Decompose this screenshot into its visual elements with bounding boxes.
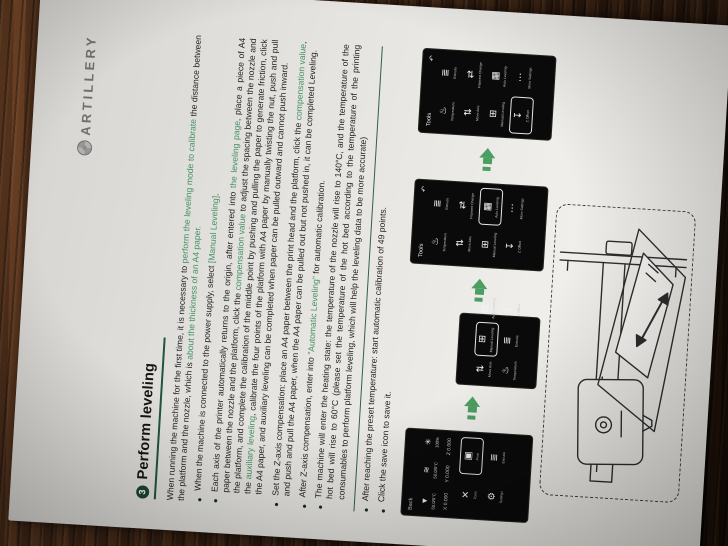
- printer-line-drawing: [542, 206, 693, 500]
- section-title-row: 3 Perform leveling: [134, 336, 166, 499]
- extrude-icon: ≣: [503, 336, 513, 345]
- manual-leveling-icon: ⊞: [480, 240, 490, 249]
- leveling-menu-screen: ⇅Move Axis⊞Manual Leveling▦Auto Leveling…: [457, 314, 540, 389]
- status-nozzle-icon: ▼50.0/0°C: [421, 492, 437, 511]
- bullet-list-top: ●When the machine is connected to the po…: [192, 36, 375, 511]
- text-segment: After Z-axis compensation, enter into: [297, 354, 316, 497]
- back-label: Back: [408, 434, 419, 510]
- tools-auto-leveling-screen: Tools↶♨Temperature≣Extrude⇅Move Axis⇄Fil…: [411, 180, 548, 271]
- screen-item-z-offset-icon: ↧Z Offset: [501, 295, 526, 325]
- screen-item-move-axis-icon: ⇅Move Axis: [459, 93, 484, 131]
- flow-arrow-icon: [479, 148, 496, 172]
- artillery-logo-mark-icon: [77, 140, 93, 156]
- nav-grid: ✕Tools▣Print⚙Settings≣Extrude: [457, 437, 511, 516]
- screen-item-label: Auto Leveling: [494, 197, 500, 218]
- screen-item-label: Z Offset: [516, 304, 521, 316]
- screen-item-settings-icon: ⚙Settings: [483, 477, 508, 515]
- screen-item-move-axis-icon: ⇅Move Axis: [472, 355, 497, 383]
- more-settings-icon: ⋯: [508, 203, 518, 213]
- back-icon: ↶: [421, 186, 428, 192]
- extrude-icon: ≣: [489, 453, 499, 462]
- text-segment: for automatic calibration.: [311, 180, 327, 276]
- printer-illustration-box: [539, 203, 697, 503]
- screen-item-label: Manual Leveling: [489, 327, 495, 352]
- screen-item-auto-leveling-icon: ▦Auto Leveling: [478, 188, 503, 226]
- screen-item-label: Auto Leveling: [502, 66, 508, 87]
- touchscreen-flow: Back▼50.0/0°C≋50.0/0°C✳100%X 0.000Y 0.00…: [396, 49, 556, 522]
- screen-item-label: Extrude: [444, 198, 449, 210]
- tools-grid: ♨Temperature≣Extrude⇅Move Axis⇄Filament …: [434, 54, 536, 135]
- temperature-icon: ♨: [439, 106, 449, 115]
- manual-content: 3 Perform leveling When running the mach…: [132, 33, 706, 531]
- coord-value: X 0.000: [443, 493, 450, 511]
- status-fan-icon: ✳100%: [425, 436, 441, 449]
- coord-value: Y 0.000: [445, 465, 452, 482]
- screen-item-label: Settings: [498, 491, 503, 504]
- manual-leveling-icon: ⊞: [488, 109, 498, 118]
- screen-item-label: Extrude: [501, 452, 506, 464]
- hotbed-icon: ≋: [423, 466, 431, 473]
- filament-change-icon: ⇄: [466, 70, 476, 79]
- flow-arrow-icon: [471, 279, 488, 303]
- z-offset-icon: ↧: [505, 242, 515, 251]
- screen-item-label: Move Axis: [475, 105, 480, 121]
- coord-value: Z 0.000: [446, 438, 453, 455]
- filament-change-icon: ⇄: [458, 201, 468, 210]
- nozzle-icon: ▼: [421, 497, 429, 505]
- manual-page: ARTILLERY 3 Perform leveling When runnin…: [8, 0, 728, 546]
- screen-item-label: Z Offset: [517, 240, 522, 252]
- screen-item-label: Temperature: [450, 102, 455, 121]
- status-row: ▼50.0/0°C≋50.0/0°C✳100%: [421, 435, 441, 512]
- screen-item-label: Extrude: [514, 335, 519, 347]
- highlighted-phrase: [Manual Leveling]: [207, 196, 221, 264]
- screen-item-extrude-icon: ≣Extrude: [499, 323, 524, 357]
- screen-item-auto-leveling-icon: ▦Auto Leveling: [486, 57, 511, 95]
- flow-arrow-icon: [463, 397, 480, 421]
- screen-item-z-offset-icon: ↧Z Offset: [501, 227, 526, 265]
- temperature-icon: ♨: [431, 237, 441, 246]
- fan-icon: ✳: [425, 438, 433, 445]
- photo-scene: ARTILLERY 3 Perform leveling When runnin…: [0, 0, 728, 546]
- leveling-grid: ⇅Move Axis⊞Manual Leveling▦Auto Leveling…: [472, 318, 524, 385]
- screen-item-label: Tools: [473, 491, 478, 499]
- tools-save-screen: Tools↶♨Temperature≣Extrude⇅Move Axis⇄Fil…: [419, 49, 556, 140]
- screen-item-label: Manual Leveling: [499, 102, 505, 127]
- section-title-text: Perform leveling: [135, 362, 158, 480]
- bullet-marker-icon: ●: [377, 508, 388, 513]
- text-segment: Click the save icon to save it.: [376, 391, 393, 502]
- settings-icon: ⚙: [487, 492, 497, 501]
- screen-item-more-settings-icon: ⋯More Settings: [503, 189, 528, 227]
- screen-item-label: Z Offset: [525, 110, 530, 122]
- move-axis-icon: ⇅: [456, 239, 466, 248]
- screen-item-label: Extrude: [452, 67, 457, 79]
- tools-icon: ✕: [461, 491, 471, 500]
- status-value: 100%: [435, 437, 440, 448]
- screen-item-label: Auto Leveling: [491, 298, 497, 319]
- tools-grid: ♨Temperature≣Extrude⇅Move Axis⇄Filament …: [426, 185, 528, 266]
- screen-item-filament-change-icon: ⇄Filament Change: [453, 186, 478, 224]
- status-value: 50.0/0°C: [433, 462, 439, 479]
- screen-item-temperature-icon: ♨Temperature: [497, 357, 522, 385]
- screen-item-z-offset-icon: ↧Z Offset: [509, 96, 534, 134]
- bullet-marker-icon: ●: [361, 507, 372, 512]
- bullet-marker-icon: ●: [210, 498, 221, 503]
- auto-leveling-icon: ▦: [483, 202, 493, 212]
- screen-item-label: Temperature: [512, 361, 517, 380]
- auto-leveling-icon: ▦: [480, 304, 490, 314]
- screen-item-label: Temperature: [442, 232, 447, 251]
- z-offset-icon: ↧: [505, 306, 515, 315]
- artillery-logo: ARTILLERY: [77, 34, 99, 156]
- auto-leveling-icon: ▦: [491, 71, 501, 81]
- screen-item-extrude-icon: ≣Extrude: [429, 185, 454, 223]
- screen-item-label: Print: [475, 453, 480, 460]
- move-axis-icon: ⇅: [476, 364, 486, 373]
- more-settings-icon: ⋯: [516, 72, 526, 82]
- screen-item-label: More Settings: [519, 198, 525, 219]
- screen-item-manual-leveling-icon: ⊞Manual Leveling: [474, 322, 499, 356]
- back-icon: ↶: [429, 55, 436, 61]
- screen-item-label: Move Axis: [488, 361, 493, 377]
- screen-item-filament-change-icon: ⇄Filament Change: [461, 55, 486, 93]
- bullet-marker-icon: ●: [271, 502, 282, 507]
- screen-item-label: More Settings: [527, 67, 533, 88]
- status-value: 50.0/0°C: [431, 493, 437, 510]
- screen-item-label: Filament Change: [477, 62, 483, 88]
- section-number-badge: 3: [135, 485, 149, 499]
- temperature-icon: ♨: [501, 366, 511, 375]
- screen-item-more-settings-icon: ⋯More Settings: [511, 58, 536, 96]
- screen-item-manual-leveling-icon: ⊞Manual Leveling: [484, 95, 509, 133]
- screen-title: Tools: [426, 113, 433, 127]
- screen-title: Tools: [418, 243, 425, 257]
- screen-item-move-axis-icon: ⇅Move Axis: [451, 224, 476, 262]
- screen-item-extrude-icon: ≣Extrude: [437, 54, 462, 92]
- screen-item-label: Filament Change: [469, 193, 475, 219]
- screen-item-label: Manual Leveling: [491, 233, 497, 258]
- screen-item-extrude-icon: ≣Extrude: [485, 438, 510, 476]
- extrude-icon: ≣: [441, 68, 451, 77]
- home-screen: Back▼50.0/0°C≋50.0/0°C✳100%X 0.000Y 0.00…: [402, 429, 533, 523]
- status-hotbed-icon: ≋50.0/0°C: [423, 461, 439, 480]
- screen-item-print-icon: ▣Print: [459, 437, 484, 475]
- screen-item-temperature-icon: ♨Temperature: [426, 222, 451, 260]
- highlighted-phrase: "Automatic Leveling": [306, 276, 321, 355]
- manual-page-surface: ARTILLERY 3 Perform leveling When runnin…: [8, 0, 728, 546]
- bullet-marker-icon: ●: [298, 504, 309, 509]
- z-offset-icon: ↧: [513, 111, 523, 120]
- screen-item-tools-icon: ✕Tools: [457, 476, 482, 514]
- screen-item-manual-leveling-icon: ⊞Manual Leveling: [476, 226, 501, 264]
- extrude-icon: ≣: [433, 199, 443, 208]
- move-axis-icon: ⇅: [464, 108, 474, 117]
- bullet-marker-icon: ●: [314, 505, 325, 510]
- print-icon: ▣: [464, 451, 474, 461]
- manual-leveling-icon: ⊞: [478, 335, 488, 344]
- coords-row: X 0.000Y 0.000Z 0.000: [443, 436, 454, 512]
- artillery-logo-text: ARTILLERY: [78, 34, 99, 136]
- screen-item-temperature-icon: ♨Temperature: [434, 92, 459, 130]
- bullet-marker-icon: ●: [194, 497, 205, 502]
- screen-item-label: Move Axis: [467, 236, 472, 252]
